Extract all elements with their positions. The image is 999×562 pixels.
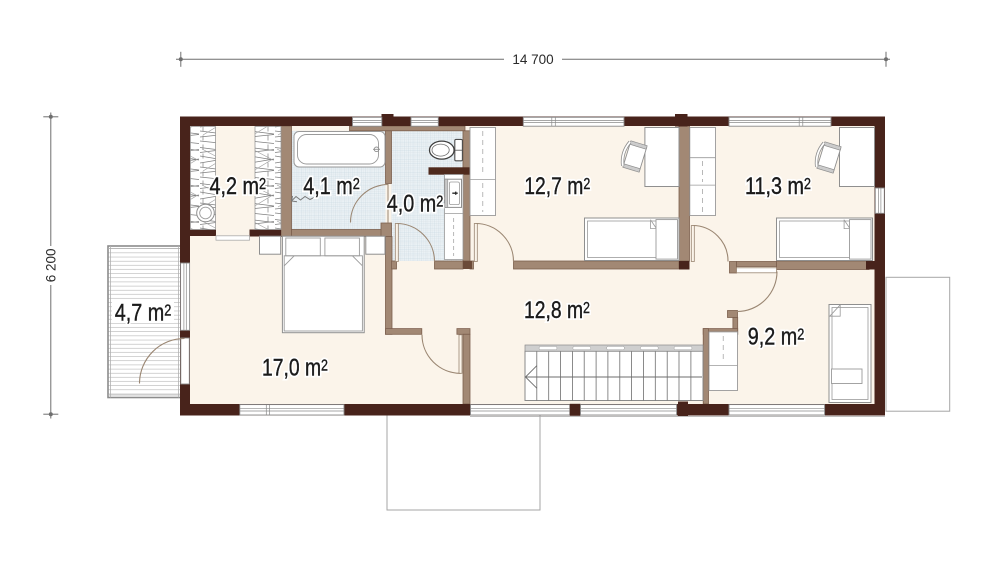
svg-text:4,7 m2: 4,7 m2 <box>115 299 172 326</box>
svg-text:17,0 m2: 17,0 m2 <box>262 355 328 382</box>
svg-text:12,7 m2: 12,7 m2 <box>524 173 590 200</box>
svg-text:6 200: 6 200 <box>44 249 59 283</box>
svg-text:4,1 m2: 4,1 m2 <box>303 173 360 200</box>
svg-text:9,2 m2: 9,2 m2 <box>748 324 805 351</box>
svg-text:12,8 m2: 12,8 m2 <box>524 297 590 324</box>
svg-text:4,2 m2: 4,2 m2 <box>210 173 267 200</box>
svg-text:11,3 m2: 11,3 m2 <box>745 173 811 200</box>
svg-text:14 700: 14 700 <box>512 52 553 67</box>
svg-text:4,0 m2: 4,0 m2 <box>387 191 444 218</box>
